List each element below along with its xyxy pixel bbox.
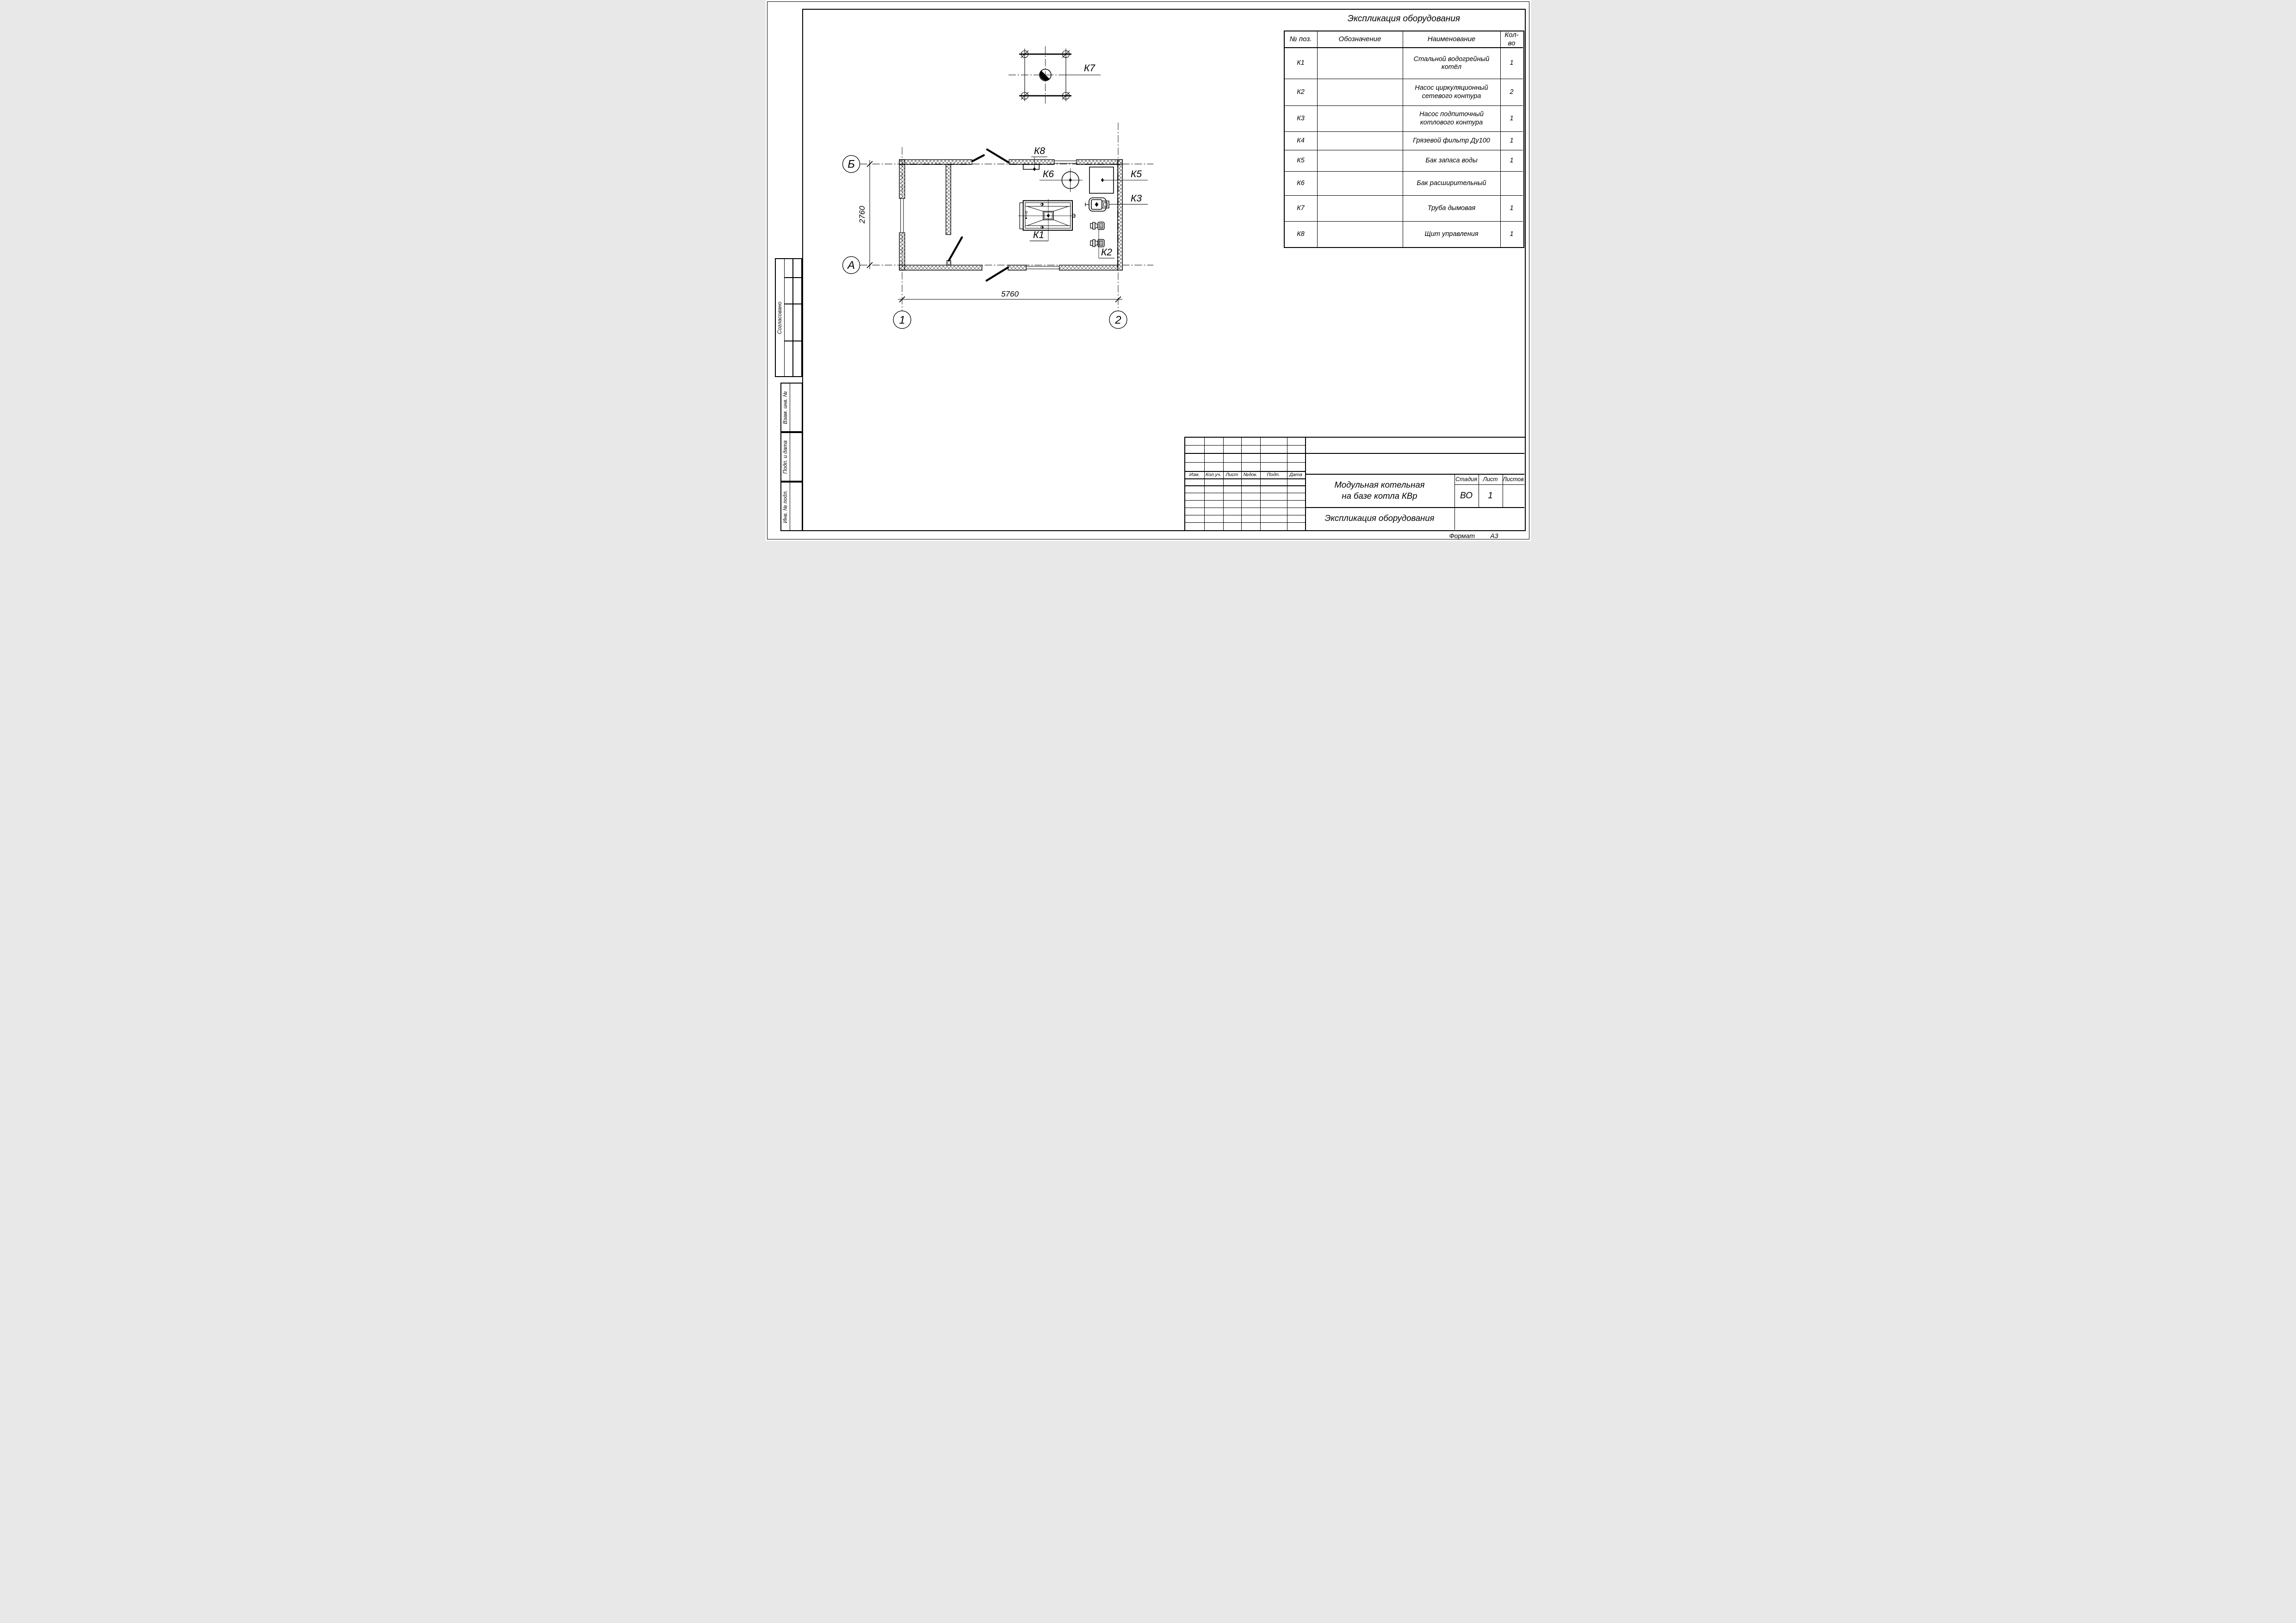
label-k6: К6 xyxy=(1042,169,1053,180)
stage-label: Стадия xyxy=(1454,474,1479,484)
sheets-value xyxy=(1503,484,1524,507)
row-qty: 1 xyxy=(1501,132,1523,150)
row-designation xyxy=(1318,196,1403,222)
row-designation xyxy=(1318,222,1403,247)
col-header-pos: № поз. xyxy=(1285,31,1318,48)
row-pos: К5 xyxy=(1285,150,1318,172)
walls xyxy=(899,160,1122,270)
dim-height: 2760 xyxy=(858,206,866,224)
row-name: Грязевой фильтр Ду100 xyxy=(1403,132,1501,150)
row-designation xyxy=(1318,79,1403,106)
sheet-value: 1 xyxy=(1479,484,1503,507)
row-designation xyxy=(1318,106,1403,132)
row-pos: К7 xyxy=(1285,196,1318,222)
row-pos: К8 xyxy=(1285,222,1318,247)
stamp-inv-number: Инв. № подл. xyxy=(780,482,803,531)
stamp-inv-number-label: Инв. № подл. xyxy=(783,490,788,523)
row-name: Насос циркуляционный сетевого контура xyxy=(1403,79,1501,106)
col-header-qty: Кол-во xyxy=(1501,31,1523,48)
label-k3: К3 xyxy=(1130,193,1141,204)
row-name: Щит управления xyxy=(1403,222,1501,247)
axis-letter-a: А xyxy=(846,259,854,272)
row-name: Бак расширительный xyxy=(1403,172,1501,196)
stamp-sign-date-label: Подп. и дата xyxy=(783,440,788,474)
row-qty: 1 xyxy=(1501,48,1523,79)
door-leaves xyxy=(949,149,1009,281)
row-pos: К3 xyxy=(1285,106,1318,132)
stamp-agreed-label: Согласовано xyxy=(777,301,783,334)
label-k5: К5 xyxy=(1130,169,1141,180)
project-title-line2: на базе котла КВр xyxy=(1342,490,1417,502)
row-designation xyxy=(1318,172,1403,196)
stamp-agreed: Согласовано xyxy=(775,258,802,377)
label-k8: К8 xyxy=(1034,146,1045,156)
project-title: Модульная котельная на базе котла КВр xyxy=(1305,474,1454,507)
stamp-sign-date: Подп. и дата xyxy=(780,432,803,482)
row-pos: К6 xyxy=(1285,172,1318,196)
row-designation xyxy=(1318,48,1403,79)
rev-header-koluch: Кол.уч. xyxy=(1204,471,1223,478)
project-title-line1: Модульная котельная xyxy=(1334,479,1424,490)
stage-value: ВО xyxy=(1454,484,1479,507)
sheets-label: Листов xyxy=(1503,474,1524,484)
col-header-designation: Обозначение xyxy=(1318,31,1403,48)
row-qty: 2 xyxy=(1501,79,1523,106)
row-pos: К1 xyxy=(1285,48,1318,79)
row-qty xyxy=(1501,172,1523,196)
row-pos: К4 xyxy=(1285,132,1318,150)
format-note: Формат А3 xyxy=(1449,532,1498,539)
row-qty: 1 xyxy=(1501,222,1523,247)
rev-header-data: Дата xyxy=(1287,471,1305,478)
row-qty: 1 xyxy=(1501,196,1523,222)
drawing-sheet: К7 xyxy=(766,0,1531,541)
row-qty: 1 xyxy=(1501,106,1523,132)
axis-number-2: 2 xyxy=(1114,314,1121,327)
equipment-table-title: Экспликация оборудования xyxy=(1284,14,1524,24)
sheet-label: Лист xyxy=(1479,474,1503,484)
rev-header-podp: Подп. xyxy=(1260,471,1287,478)
rev-header-list: Лист xyxy=(1223,471,1241,478)
sheet-title: Экспликация оборудования xyxy=(1305,507,1454,530)
label-k1: К1 xyxy=(1033,230,1044,241)
stamp-replace-inv-label: Взам. инв. № xyxy=(783,391,788,424)
title-block: Изм. Кол.уч. Лист №док. Подп. Дата Модул… xyxy=(1184,437,1526,531)
format-label: Формат xyxy=(1449,532,1475,539)
axis-markers xyxy=(842,155,1127,328)
label-k7: К7 xyxy=(1083,63,1095,74)
row-name: Труба дымовая xyxy=(1403,196,1501,222)
format-value: А3 xyxy=(1490,532,1498,539)
row-qty: 1 xyxy=(1501,150,1523,172)
row-name: Бак запаса воды xyxy=(1403,150,1501,172)
row-pos: К2 xyxy=(1285,79,1318,106)
axis-letter-b: Б xyxy=(848,158,855,171)
dimension-lines xyxy=(867,160,1122,302)
row-name: Стальной водогрейный котёл xyxy=(1403,48,1501,79)
rev-header-izm: Изм. xyxy=(1185,471,1204,478)
equipment-table: № поз. Обозначение Наименование Кол-во К… xyxy=(1284,31,1524,248)
label-k2: К2 xyxy=(1101,247,1112,258)
dim-width: 5760 xyxy=(1001,290,1019,298)
col-header-name: Наименование xyxy=(1403,31,1501,48)
row-designation xyxy=(1318,132,1403,150)
row-name: Насос подпиточный котлового контура xyxy=(1403,106,1501,132)
boiler-k1-symbol xyxy=(1018,199,1076,241)
row-designation xyxy=(1318,150,1403,172)
stamp-replace-inv: Взам. инв. № xyxy=(780,383,803,432)
axis-number-1: 1 xyxy=(899,314,905,327)
rev-header-dok: №док. xyxy=(1241,471,1260,478)
